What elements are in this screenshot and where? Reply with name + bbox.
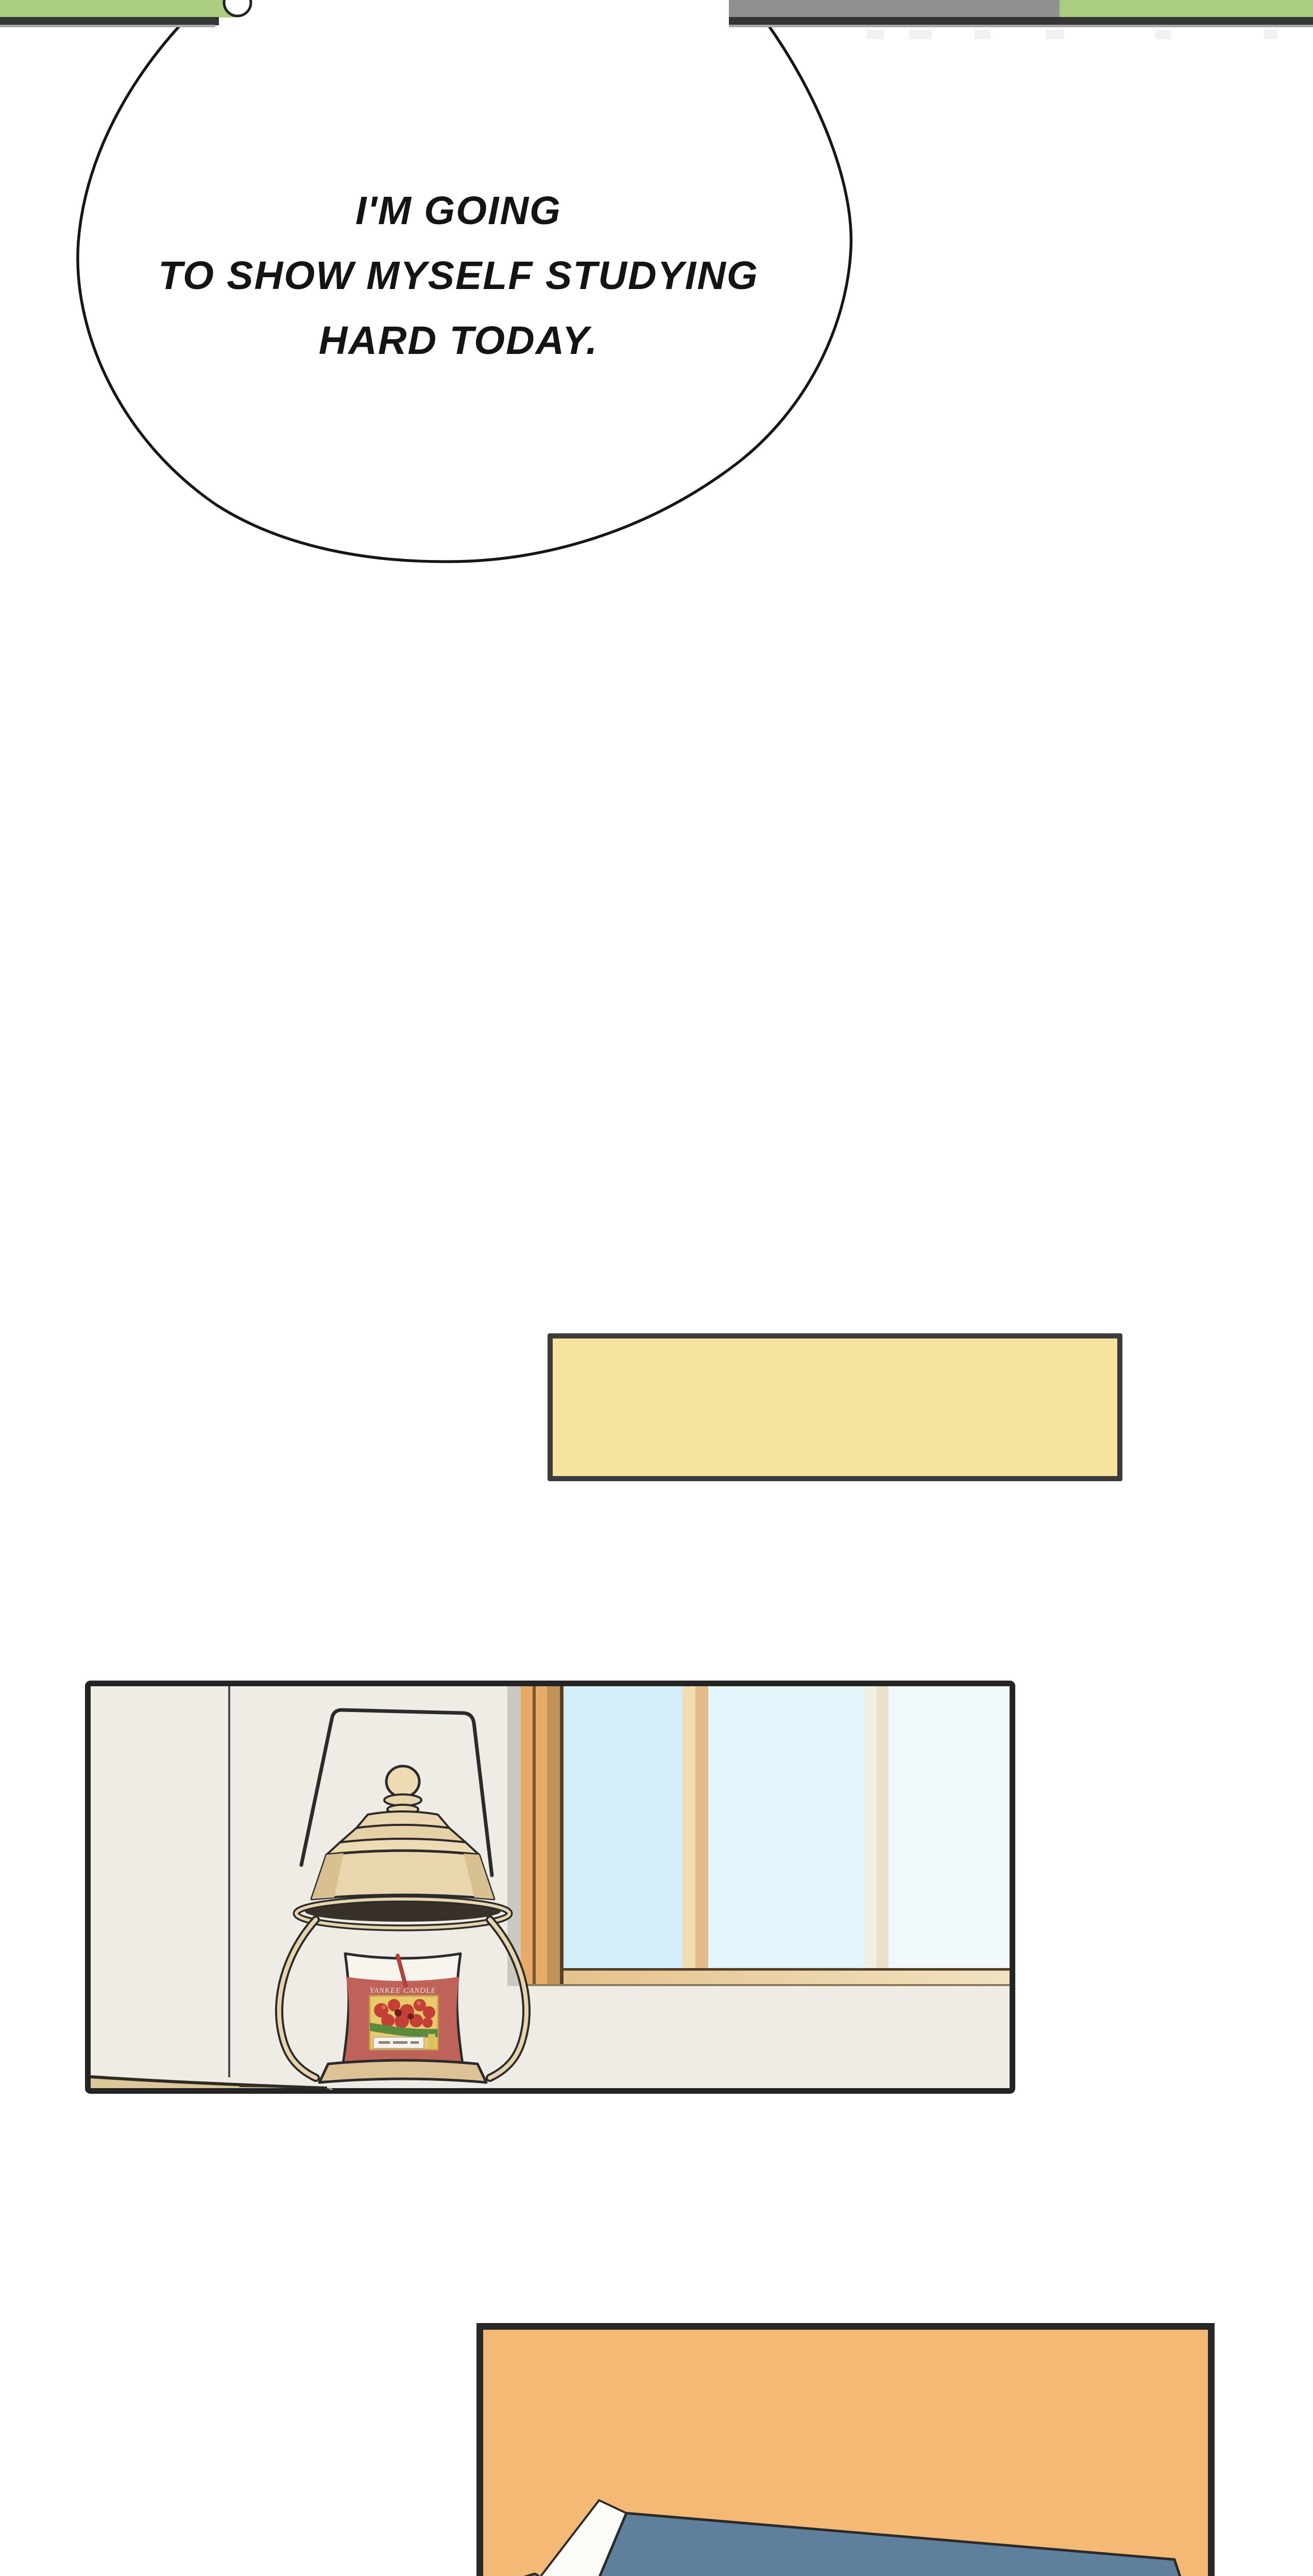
lantern-finial: [386, 1766, 419, 1797]
speech-bubble-text: I'M GOING TO SHOW MYSELF STUDYING HARD T…: [118, 178, 798, 373]
candle-brand-text: YANKEE CANDLE: [369, 1987, 436, 1995]
table-edge-left: [0, 17, 219, 25]
window-mullion-2-pale: [877, 1686, 889, 1968]
window-glass-left: [564, 1686, 683, 1968]
window-glass-right: [889, 1686, 1010, 1968]
window-frame-outline: [560, 1686, 564, 1986]
window-sill-topline: [564, 1968, 1010, 1971]
knob-detail: [224, 0, 251, 16]
window-mullion-1-tan: [695, 1686, 708, 1968]
table-edge-right: [729, 17, 1313, 25]
candle-label: [370, 1996, 438, 2049]
lantern-panel: YANKEE CANDLE: [85, 1681, 1015, 2094]
table-edge-highlight-right: [729, 25, 1313, 27]
bubble-line-2: TO SHOW MYSELF STUDYING: [118, 243, 798, 308]
green-surface-left: [0, 0, 234, 18]
window-mullion-1-cream: [683, 1686, 695, 1968]
table-edge-highlight-left: [0, 25, 215, 27]
window-frame-shade: [547, 1686, 560, 1986]
gray-surface: [729, 0, 1060, 18]
window-sill-bottomline: [521, 1984, 1010, 1986]
window-mullion-2-white: [864, 1686, 877, 1968]
caption-box: [548, 1333, 1122, 1481]
bubble-line-3: HARD TODAY.: [118, 308, 798, 373]
window-glass-mid: [708, 1686, 864, 1968]
label-yellow-tab: [428, 2034, 435, 2047]
comic-page: I'M GOING TO SHOW MYSELF STUDYING HARD T…: [0, 0, 1313, 2576]
window-sill: [564, 1968, 1010, 1986]
window-frame-groove: [533, 1686, 536, 1986]
bubble-line-1: I'M GOING: [118, 178, 798, 243]
caption-text: [553, 1338, 1117, 1476]
faint-reflection-marks: [866, 30, 1277, 39]
green-surface-right: [1060, 0, 1313, 18]
window: [507, 1686, 1010, 1986]
desk-panel: [473, 2320, 1218, 2576]
lantern-base: [319, 2060, 486, 2082]
previous-panel-strip: [0, 0, 1313, 62]
banner-text-marks: [379, 2041, 419, 2044]
